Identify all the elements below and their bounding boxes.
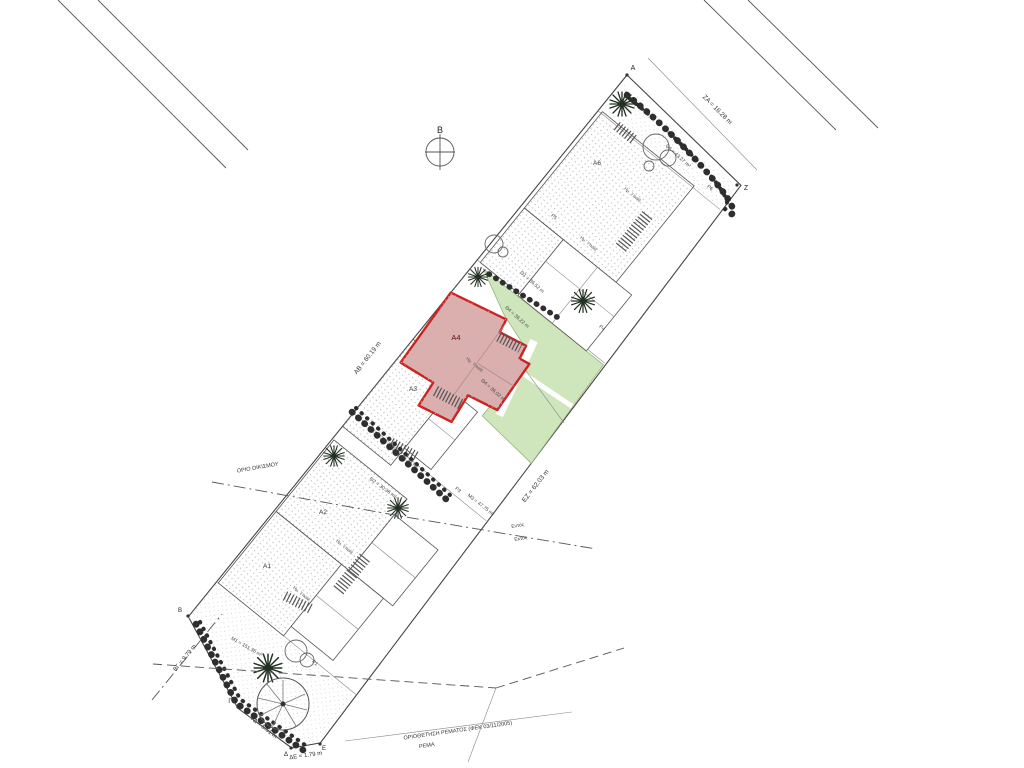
dim-za: ΖΑ = 16.28 m: [701, 94, 733, 126]
dim-ab: ΑΒ = 60.19 m: [353, 340, 383, 375]
site-plan-page: ΒΑΖΒΓΔΕΖΑ = 16.28 mΑΒ = 60.19 mΕΖ = 62.0…: [0, 0, 1024, 768]
vertex-d-label: Δ: [284, 752, 288, 758]
dim-ez: ΕΖ = 62.03 m: [521, 468, 551, 503]
palm-tree-icon: [468, 267, 487, 286]
vertex-b-label: Β: [178, 608, 182, 614]
palm-tree-icon: [324, 446, 344, 466]
bldg-a4-label: Α4: [451, 333, 460, 342]
vertex-a-label: Α: [631, 65, 636, 72]
palm-tree-icon: [572, 290, 595, 313]
bldg-a6-label: Α6: [593, 160, 601, 167]
bldg-a2-label: Α2: [319, 509, 327, 516]
north-arrow-icon: [425, 134, 455, 170]
dim-bg: ΒΓ = 9.79 m: [173, 644, 198, 673]
stream-delimitation-label: ΟΡΙΟΘΕΤΗΣΗ ΡΕΜΑΤΟΣ (ΦΕΚ 03/11/2005): [403, 720, 513, 741]
north-label: Β: [437, 125, 443, 135]
stream-delimitation-line2: [496, 648, 624, 688]
bldg-a1-label: Α1: [263, 563, 271, 570]
stream-label: ΡΕΜΑ: [419, 742, 436, 750]
dim-de: ΔΕ = 1.79 m: [289, 751, 323, 762]
palm-tree-icon: [610, 92, 634, 116]
palm-tree-icon: [388, 498, 408, 518]
stream-label-leader: [345, 712, 572, 741]
entos-label: Εντός: [511, 521, 526, 530]
parcel-group: [163, 75, 768, 762]
vertex-e-label: Ε: [322, 746, 326, 752]
settlement-boundary-label: ΟΡΙΟ ΟΙΚΙΣΜΟΥ: [237, 461, 280, 474]
vertex-z-label: Ζ: [744, 185, 749, 192]
adjacent-road-lines: [58, 0, 878, 168]
site-plan-drawing: ΒΑΖΒΓΔΕΖΑ = 16.28 mΑΒ = 60.19 mΕΖ = 62.0…: [0, 0, 1024, 768]
bldg-a3-label: Α3: [409, 386, 417, 393]
palm-tree-icon: [254, 654, 282, 682]
